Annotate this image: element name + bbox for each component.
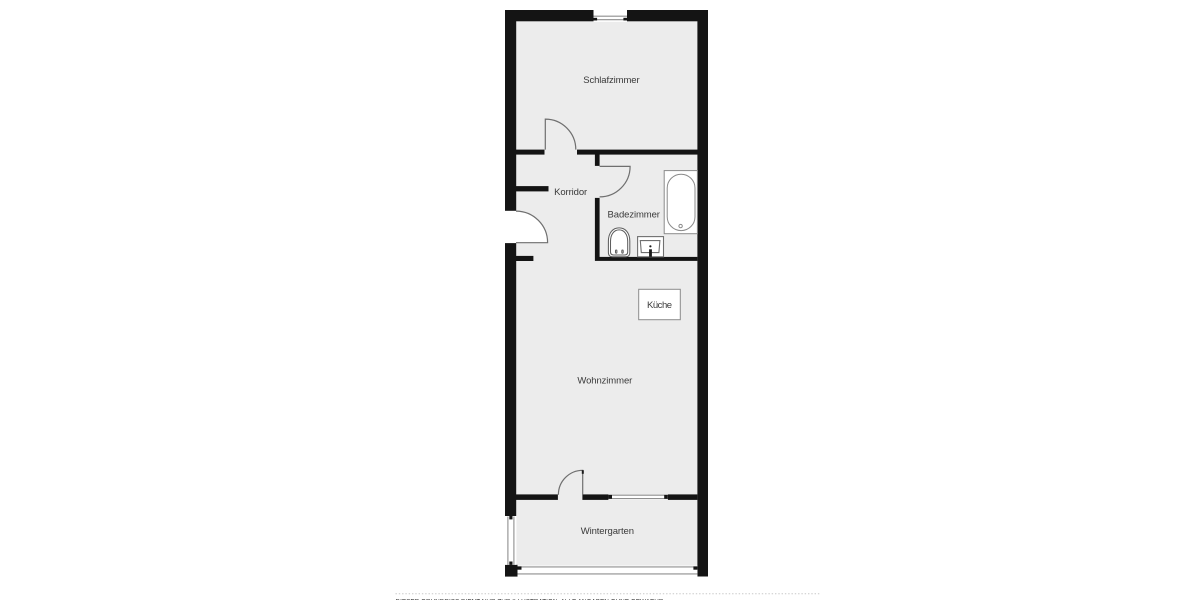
svg-text:Wintergarten: Wintergarten: [581, 526, 634, 537]
svg-text:Wohnzimmer: Wohnzimmer: [577, 375, 632, 386]
svg-text:Küche: Küche: [647, 300, 672, 311]
svg-text:Schlafzimmer: Schlafzimmer: [583, 75, 639, 86]
svg-text:Korridor: Korridor: [554, 187, 587, 198]
svg-text:Badezimmer: Badezimmer: [608, 209, 660, 220]
